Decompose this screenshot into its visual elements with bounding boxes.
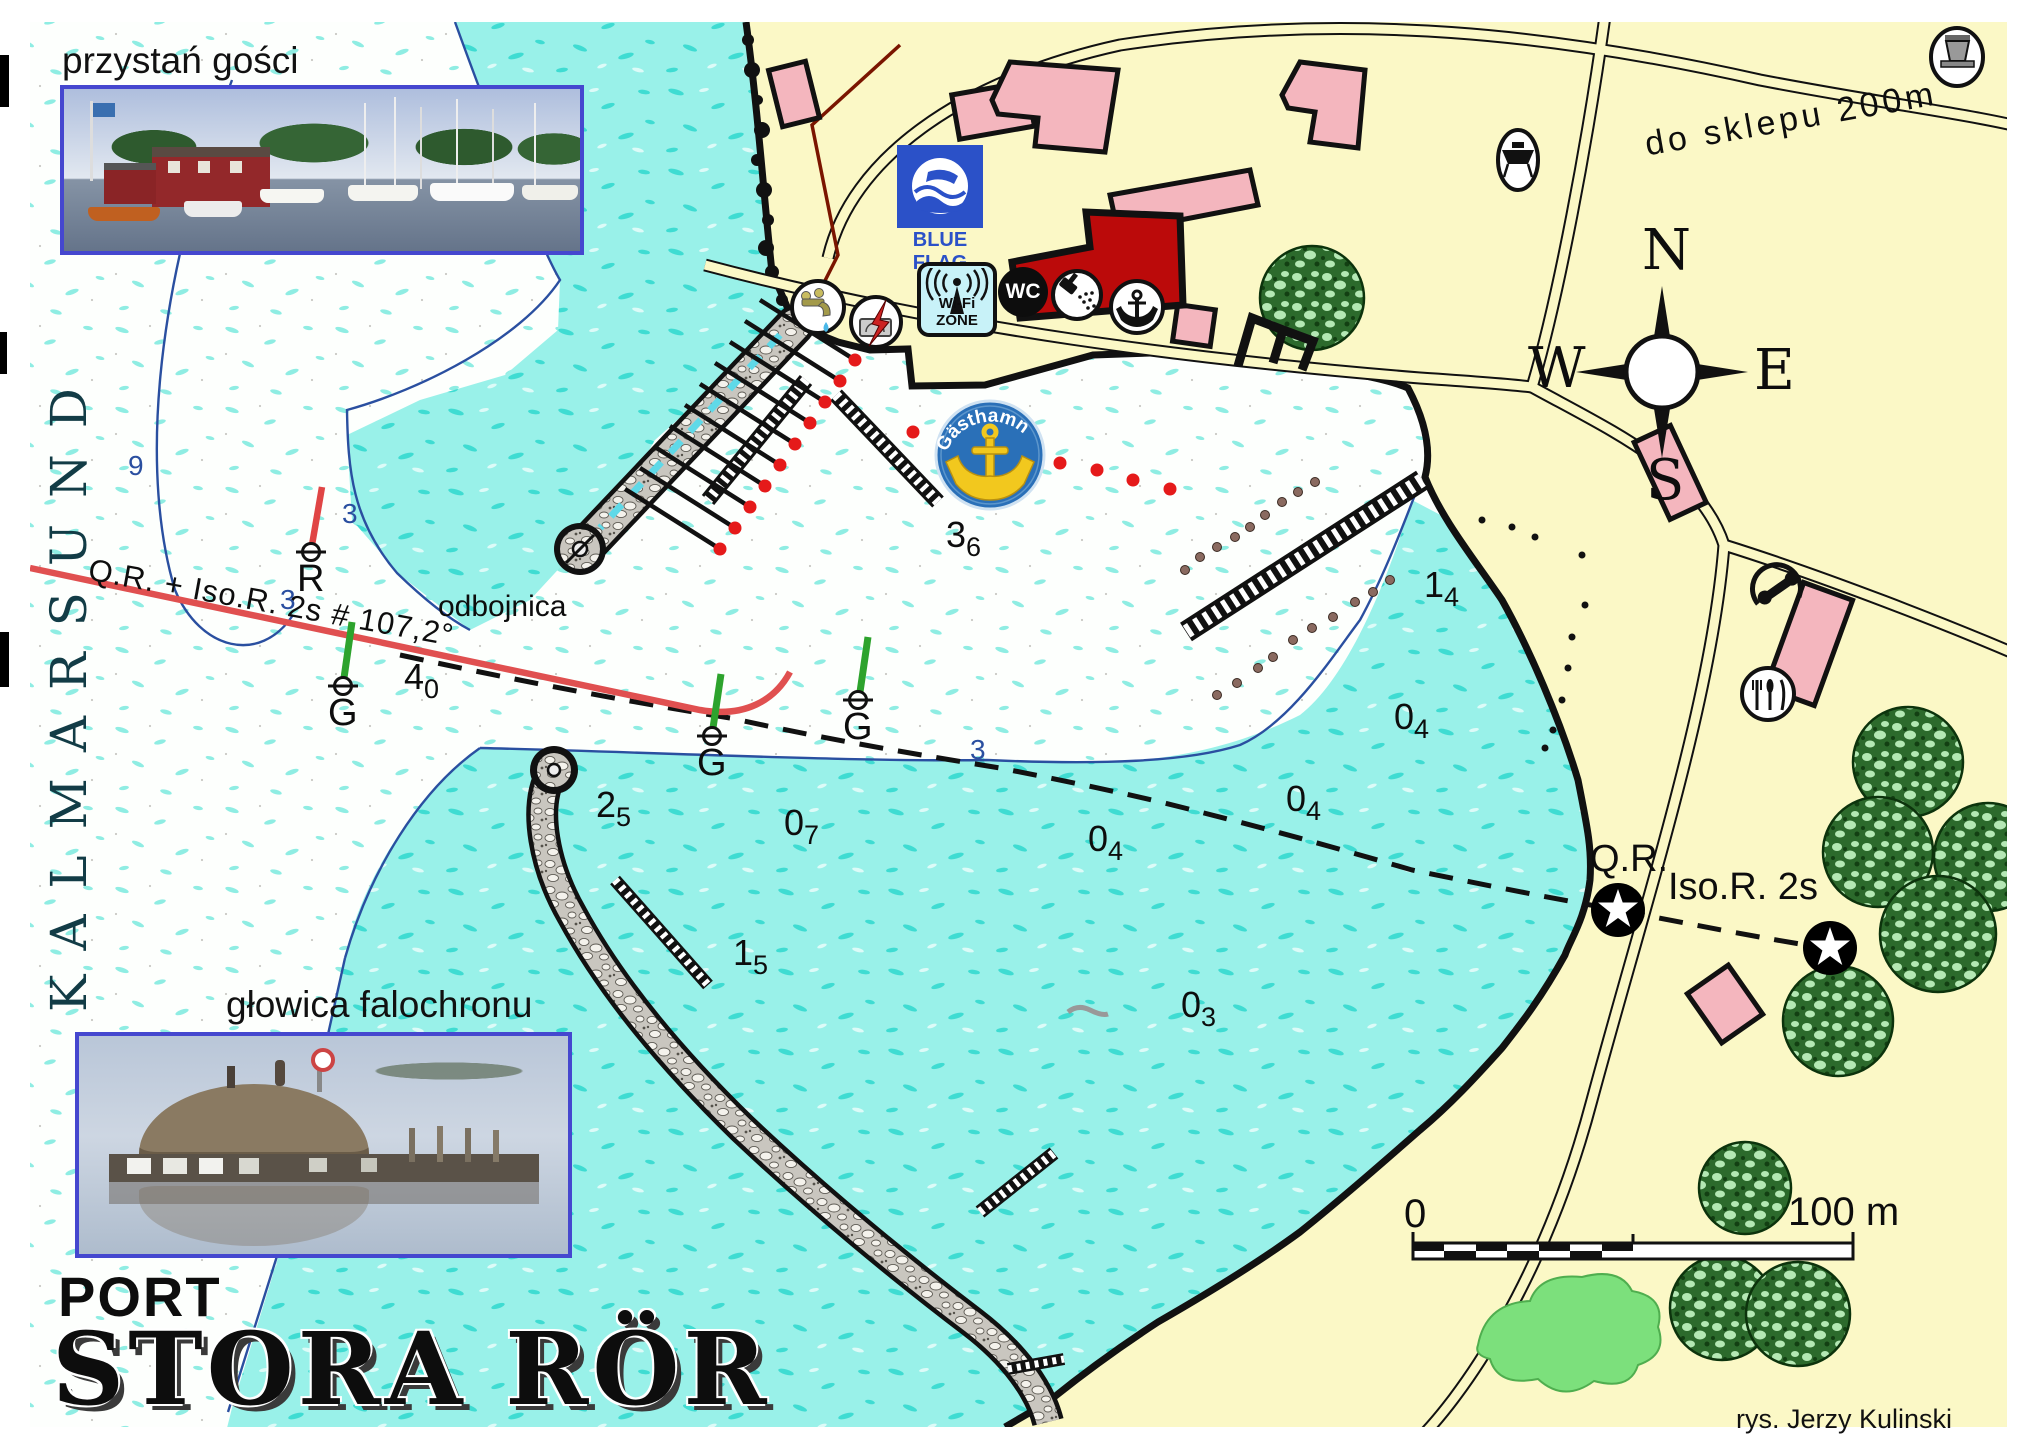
photo-caption-guest-marina: przystań gości — [62, 40, 299, 82]
photo-guest-marina — [60, 85, 584, 255]
compass-east-label: E — [1754, 338, 1795, 403]
waste-disposal-icon — [1931, 28, 1983, 86]
scale-end-label: 100 m — [1788, 1190, 1899, 1235]
shower-icon — [1053, 270, 1101, 319]
scale-start-label: 0 — [1404, 1192, 1426, 1237]
grill-icon — [1498, 130, 1538, 190]
title-harbour-name: STORA RÖR — [52, 1310, 771, 1428]
fender-label: odbojnica — [438, 590, 566, 624]
credit-label: rys. Jerzy Kulinski — [1736, 1404, 1952, 1435]
wifi-zone-label: Wi-Fi ZONE — [921, 295, 993, 329]
wifi-zone-icon: Wi-Fi ZONE — [917, 262, 997, 337]
photo-caption-breakwater-head: głowica falochronu — [226, 984, 532, 1026]
sea-name-label: KALMARSUND — [40, 362, 98, 1012]
compass-south-label: S — [1646, 448, 1684, 513]
tap-icon — [792, 281, 844, 333]
compass-north-label: N — [1642, 218, 1691, 283]
wc-icon-label: WC — [1001, 280, 1045, 304]
restaurant-icon — [1742, 668, 1794, 720]
electricity-icon — [851, 297, 901, 347]
compass-west-label: W — [1528, 336, 1586, 401]
anchorage-icon — [1111, 281, 1163, 333]
blue-flag-logo — [897, 145, 983, 228]
photo-breakwater-head — [75, 1032, 572, 1258]
harbour-chart: Gästhamn przystań gości głowica falochro… — [0, 0, 2041, 1448]
